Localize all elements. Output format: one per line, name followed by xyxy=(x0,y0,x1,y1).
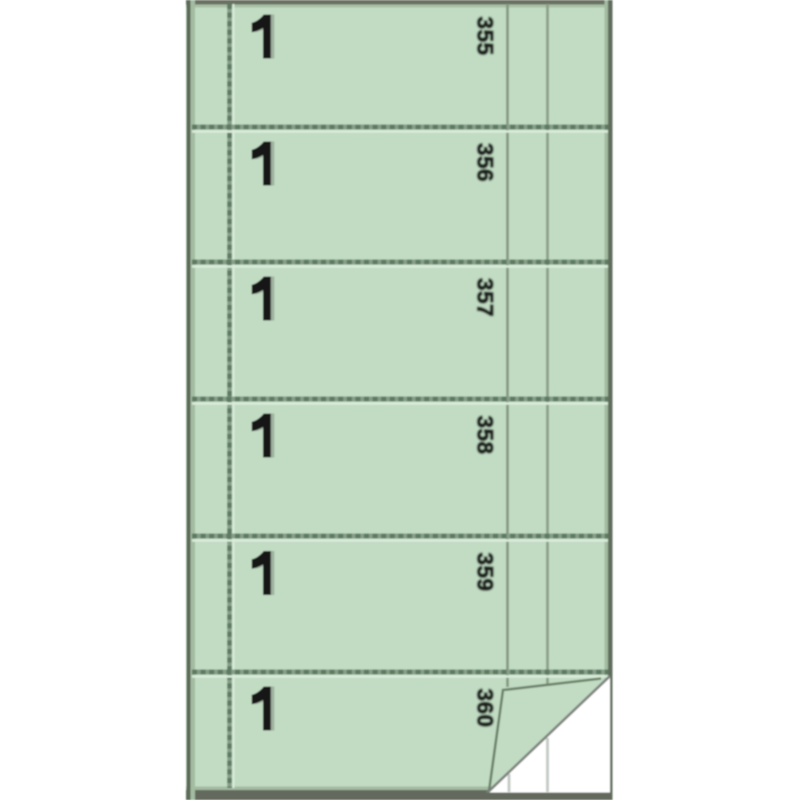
svg-text:356: 356 xyxy=(473,143,498,182)
svg-text:360: 360 xyxy=(473,689,498,728)
svg-text:358: 358 xyxy=(473,416,498,455)
svg-text:355: 355 xyxy=(473,17,498,56)
svg-text:357: 357 xyxy=(473,278,498,317)
svg-text:359: 359 xyxy=(473,553,498,592)
